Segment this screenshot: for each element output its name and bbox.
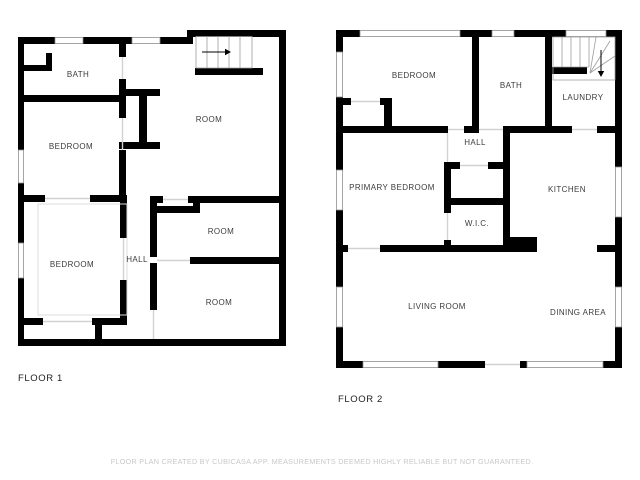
room-label-bath: BATH bbox=[500, 81, 522, 90]
floor2-fireplace-block bbox=[508, 237, 537, 252]
room-label-hall: HALL bbox=[464, 138, 486, 147]
footer-disclaimer: FLOOR PLAN CREATED BY CUBICASA APP. MEAS… bbox=[111, 457, 534, 466]
floorplan-drawing: BATH BEDROOM BEDROOM HALL ROOM ROOM ROOM… bbox=[0, 0, 640, 480]
room-label-bedroom-1: BEDROOM bbox=[49, 142, 93, 151]
room-label-room-1: ROOM bbox=[196, 115, 223, 124]
room-label-laundry: LAUNDRY bbox=[563, 93, 604, 102]
room-label-bedroom: BEDROOM bbox=[392, 71, 436, 80]
room-label-living-room: LIVING ROOM bbox=[408, 302, 466, 311]
floor1-title: FLOOR 1 bbox=[18, 373, 63, 384]
floorplan-canvas: BATH BEDROOM BEDROOM HALL ROOM ROOM ROOM… bbox=[0, 0, 640, 480]
floor1-interior-walls bbox=[18, 37, 286, 346]
room-label-dining-area: DINING AREA bbox=[550, 308, 606, 317]
floor2-title: FLOOR 2 bbox=[338, 394, 383, 405]
room-label-bath: BATH bbox=[67, 70, 89, 79]
floor1-stairs-icon bbox=[196, 37, 252, 69]
room-label-room-2: ROOM bbox=[208, 227, 235, 236]
room-label-hall: HALL bbox=[126, 255, 148, 264]
room-label-kitchen: KITCHEN bbox=[548, 185, 586, 194]
floor2-plan: BEDROOM BATH LAUNDRY HALL PRIMARY BEDROO… bbox=[336, 30, 622, 405]
room-label-room-3: ROOM bbox=[206, 298, 233, 307]
room-label-bedroom-2: BEDROOM bbox=[50, 260, 94, 269]
floor1-plan: BATH BEDROOM BEDROOM HALL ROOM ROOM ROOM… bbox=[18, 30, 286, 384]
room-label-primary-bedroom: PRIMARY BEDROOM bbox=[349, 183, 435, 192]
floor1-windows bbox=[19, 38, 161, 279]
room-label-wic: W.I.C. bbox=[465, 219, 489, 228]
